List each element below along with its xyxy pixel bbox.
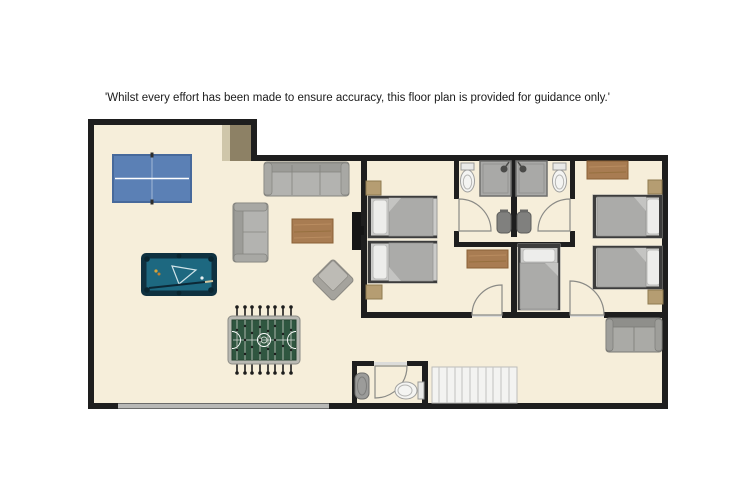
threshold-wc bbox=[374, 362, 407, 365]
three-seat-sofa bbox=[264, 162, 349, 196]
bedroom1-nightstand-bottom bbox=[366, 285, 382, 299]
bathroom2-toilet bbox=[553, 163, 567, 192]
wall-top-left bbox=[88, 119, 257, 125]
bedroom2-dresser bbox=[587, 161, 628, 179]
bedroom2-single-bed bbox=[518, 244, 560, 310]
foosball-table bbox=[228, 305, 300, 375]
bedroom2-bed-1 bbox=[593, 195, 662, 238]
wall-bath2-east-upper bbox=[570, 158, 575, 199]
bathroom1-basin bbox=[497, 210, 511, 234]
bedroom1-bed-1 bbox=[368, 196, 437, 238]
wall-alcove-west bbox=[511, 242, 517, 318]
bathroom2-shower bbox=[516, 161, 547, 196]
bathroom1-toilet bbox=[461, 163, 475, 192]
patio-window bbox=[118, 404, 329, 409]
coffee-table bbox=[292, 219, 333, 243]
wall-left bbox=[88, 119, 94, 409]
bedroom1-nightstand-top bbox=[366, 181, 381, 195]
wall-step bbox=[251, 119, 257, 161]
bedroom2-bed-2 bbox=[593, 246, 662, 289]
wall-south-a bbox=[361, 312, 472, 318]
bathroom1-shower bbox=[480, 161, 511, 196]
bedroom2-nightstand-top bbox=[648, 180, 662, 194]
staircase bbox=[432, 367, 517, 403]
two-seat-sofa bbox=[233, 203, 268, 262]
bedroom1-dresser bbox=[467, 250, 508, 268]
wall-top-right bbox=[251, 155, 668, 161]
pillar bbox=[222, 124, 251, 161]
pool-table bbox=[141, 253, 217, 296]
bedroom1-bed-2 bbox=[368, 241, 437, 283]
bathroom2-basin bbox=[517, 210, 531, 234]
wall-south-c bbox=[604, 312, 668, 318]
table-tennis-table bbox=[113, 153, 191, 205]
wc-toilet bbox=[395, 382, 424, 399]
wc-corner-basin bbox=[355, 373, 369, 399]
hallway-sofa bbox=[606, 318, 662, 352]
floor-plan-page: 'Whilst every effort has been made to en… bbox=[0, 0, 755, 504]
wall-bath1-west-upper bbox=[454, 158, 459, 199]
wall-right bbox=[662, 155, 668, 409]
floor-plan-drawing bbox=[0, 0, 755, 504]
bedroom2-nightstand-bottom bbox=[648, 290, 663, 304]
